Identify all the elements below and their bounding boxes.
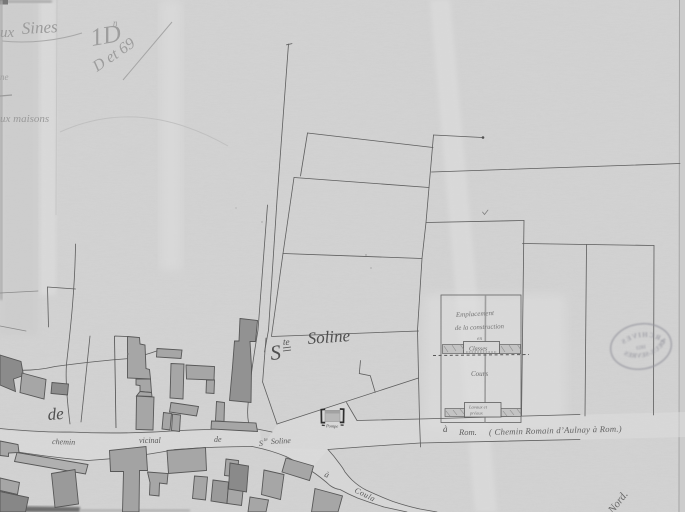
svg-text:de: de [47,404,65,424]
svg-text:de: de [214,435,222,444]
svg-text:Sines: Sines [21,17,58,38]
svg-text:Pompe: Pompe [325,423,338,428]
svg-text:ux: ux [0,25,15,41]
svg-text:chemin: chemin [52,437,75,447]
svg-text:Cours: Cours [471,370,488,378]
svg-text:à: à [443,424,448,434]
svg-text:n: n [113,18,118,28]
svg-text:préaux: préaux [469,411,483,416]
svg-text:ne: ne [0,72,9,82]
svg-text:S: S [259,439,263,448]
svg-text:Soline: Soline [307,326,351,348]
svg-text:Lavaux et: Lavaux et [468,405,488,410]
svg-text:vicinal: vicinal [139,436,162,445]
svg-text:te: te [283,337,290,347]
svg-text:ux maisons: ux maisons [0,113,49,125]
svg-text:Soline: Soline [271,436,292,446]
svg-text:Rom.: Rom. [458,427,477,437]
